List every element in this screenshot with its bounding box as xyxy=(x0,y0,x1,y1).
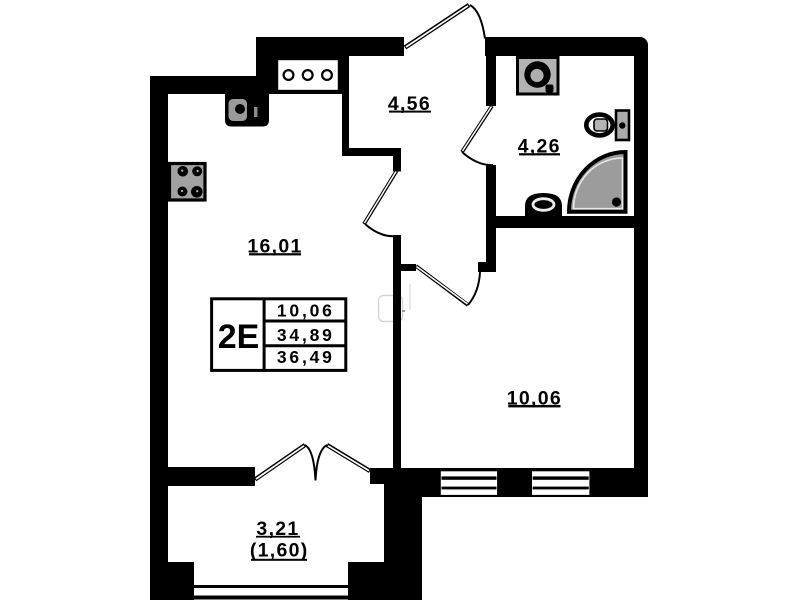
svg-text:10,06: 10,06 xyxy=(277,300,335,320)
svg-text:34,89: 34,89 xyxy=(277,325,335,345)
svg-text:(1,60): (1,60) xyxy=(250,540,309,562)
svg-text:36,49: 36,49 xyxy=(277,347,335,367)
svg-text:2E: 2E xyxy=(218,318,260,356)
